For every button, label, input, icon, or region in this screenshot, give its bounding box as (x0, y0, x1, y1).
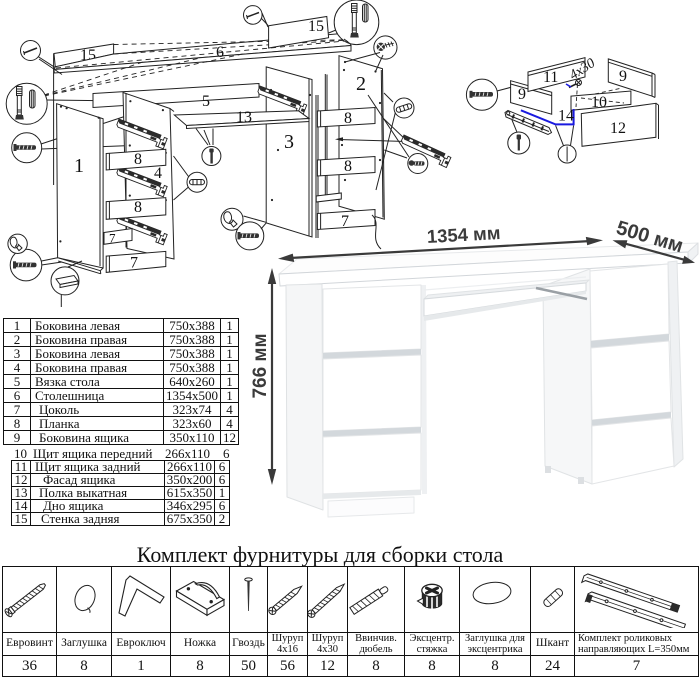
svg-text:7: 7 (130, 255, 138, 272)
svg-text:8: 8 (134, 199, 142, 216)
svg-text:8: 8 (344, 110, 352, 127)
svg-text:1: 1 (74, 155, 84, 177)
svg-text:1354 мм: 1354 мм (426, 222, 501, 247)
svg-text:12: 12 (610, 120, 626, 137)
svg-text:4x30: 4x30 (567, 56, 598, 83)
svg-text:4: 4 (154, 165, 162, 182)
svg-text:9: 9 (518, 86, 526, 103)
svg-text:14: 14 (558, 108, 574, 125)
svg-text:5: 5 (202, 93, 210, 110)
svg-text:13: 13 (236, 109, 252, 126)
svg-text:7: 7 (109, 231, 116, 246)
svg-text:11: 11 (543, 69, 558, 86)
svg-text:15: 15 (308, 18, 324, 35)
svg-text:2: 2 (356, 73, 366, 95)
svg-text:7: 7 (341, 213, 349, 230)
svg-text:9: 9 (619, 68, 627, 85)
svg-text:3: 3 (284, 131, 294, 153)
svg-text:8: 8 (134, 151, 142, 168)
svg-text:766 мм: 766 мм (250, 333, 271, 398)
svg-text:8: 8 (344, 158, 352, 175)
svg-text:10: 10 (591, 94, 607, 111)
